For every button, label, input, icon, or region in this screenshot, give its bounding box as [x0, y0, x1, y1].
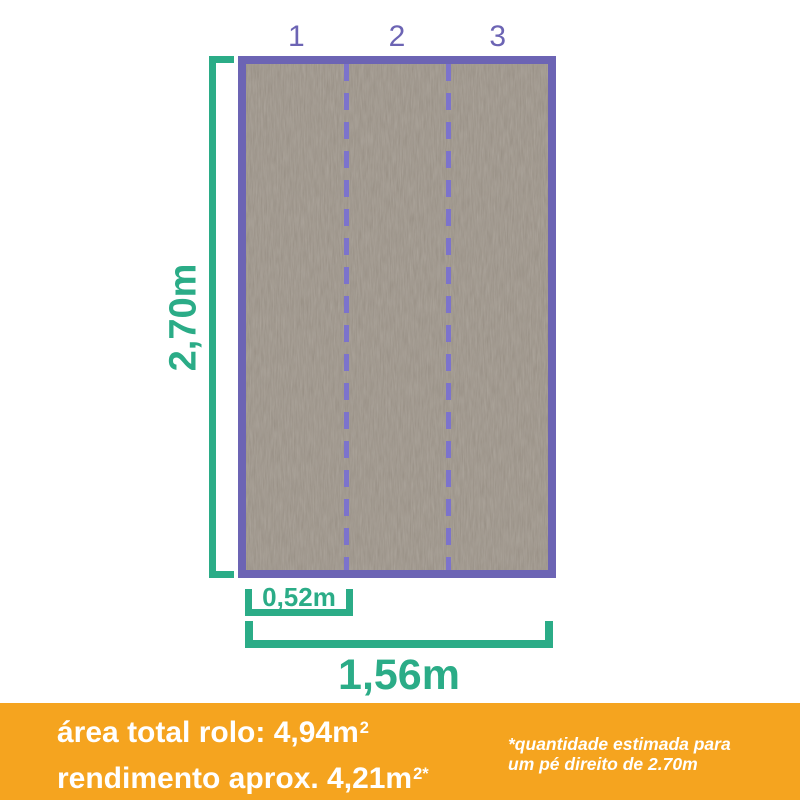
wallpaper-roll-diagram: 1 2 3: [0, 0, 800, 800]
strip-numbers-row: 1 2 3: [246, 20, 548, 54]
wallpaper-texture-area: [246, 64, 548, 570]
area-total-text: área total rolo: 4,94m: [57, 716, 359, 749]
total-width-label: 1,56m: [245, 651, 553, 700]
strip-divider-dashed-line-1: [344, 64, 349, 570]
strip-width-bracket: [245, 589, 353, 616]
total-width-bracket: [245, 621, 553, 648]
banner-main-text: área total rolo: 4,94m2 rendimento aprox…: [57, 712, 429, 800]
area-total-line: área total rolo: 4,94m2: [57, 712, 429, 758]
strip-divider-dashed-line-2: [446, 64, 451, 570]
strip-number-label-1: 1: [246, 20, 347, 54]
rendimento-superscript: 2*: [413, 765, 429, 783]
rendimento-text: rendimento aprox. 4,21m: [57, 762, 412, 795]
wallpaper-texture-image: [246, 64, 548, 570]
info-banner: área total rolo: 4,94m2 rendimento aprox…: [0, 703, 800, 800]
wallpaper-rectangle: [238, 56, 556, 578]
footnote-line-2: um pé direito de 2.70m: [508, 754, 731, 774]
rendimento-line: rendimento aprox. 4,21m2*: [57, 758, 429, 800]
banner-footnote: *quantidade estimada para um pé direito …: [508, 734, 731, 774]
height-dimension-label: 2,70m: [163, 263, 206, 371]
height-dimension-label-box: 2,70m: [154, 56, 214, 578]
area-total-superscript: 2: [360, 719, 369, 737]
strip-number-label-3: 3: [447, 20, 548, 54]
footnote-line-1: *quantidade estimada para: [508, 734, 731, 754]
strip-number-label-2: 2: [347, 20, 448, 54]
